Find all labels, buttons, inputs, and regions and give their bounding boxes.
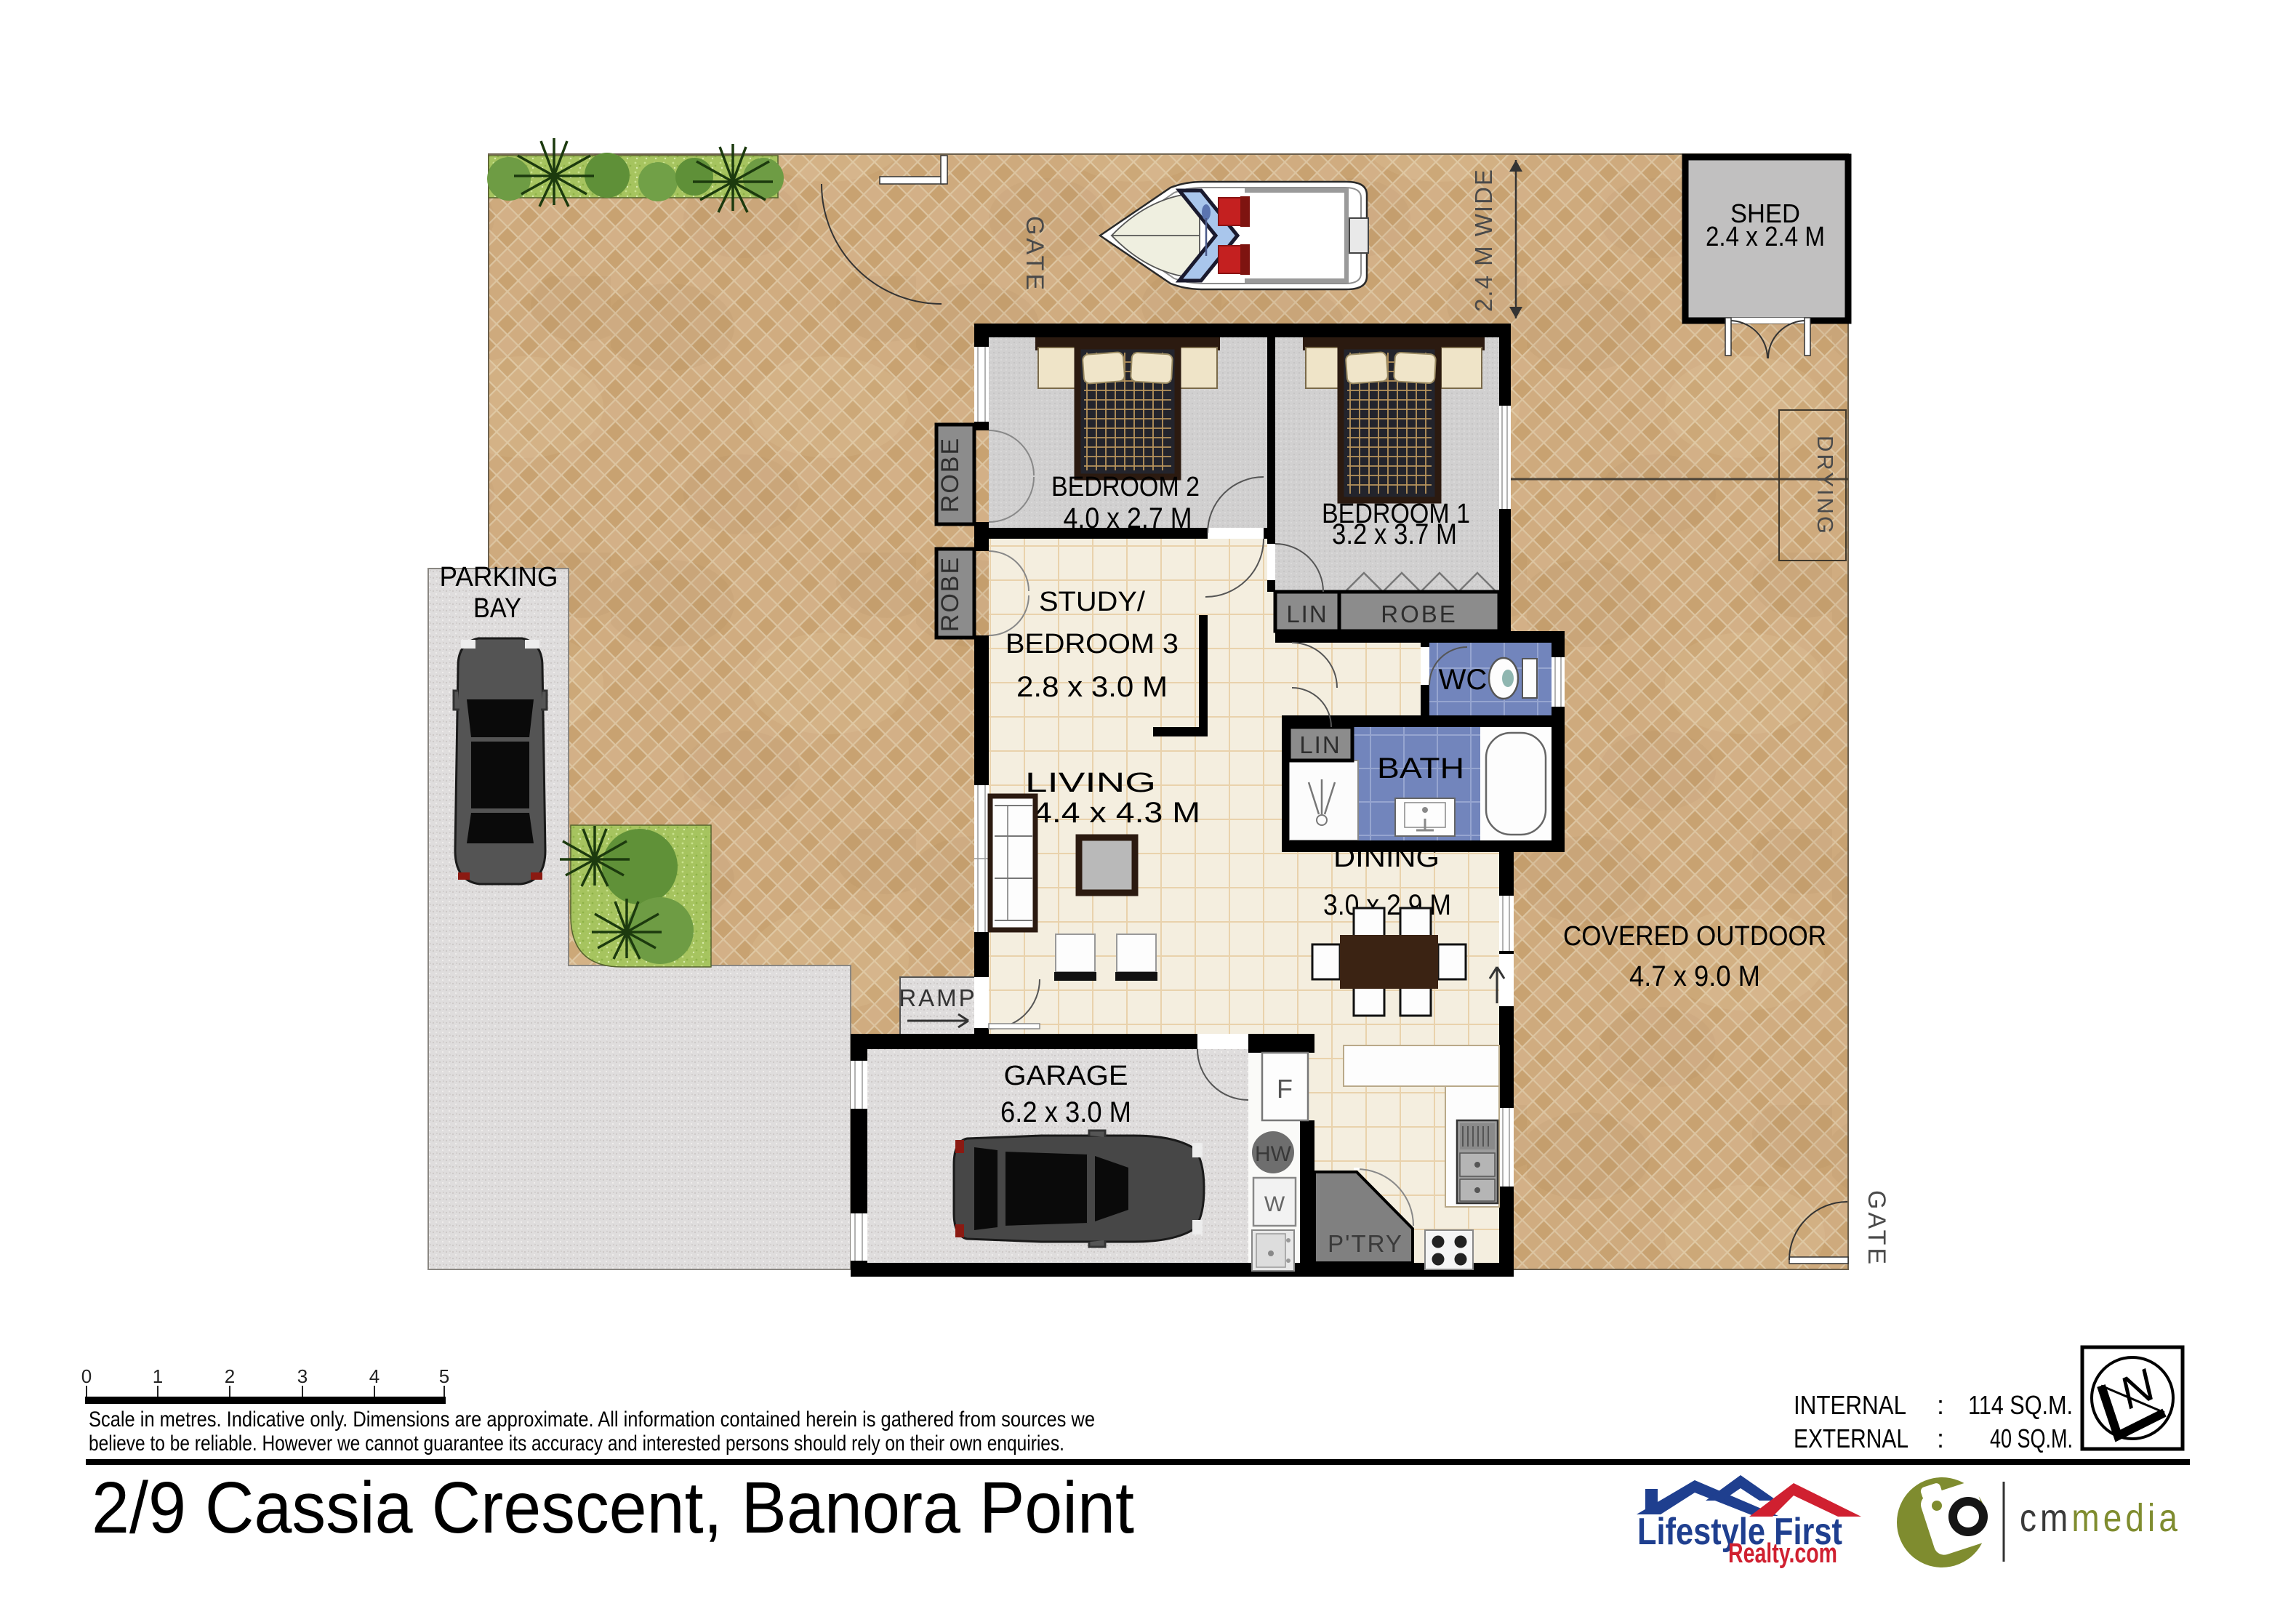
- svg-text:INTERNAL: INTERNAL: [1794, 1390, 1906, 1420]
- svg-text:GATE: GATE: [1863, 1190, 1890, 1267]
- svg-text:Scale in metres. Indicative o: Scale in metres. Indicative only. Dimens…: [89, 1408, 1095, 1432]
- svg-text:COVERED OUTDOOR: COVERED OUTDOOR: [1563, 921, 1826, 952]
- svg-text:LIVING: LIVING: [1025, 768, 1156, 798]
- svg-text:RAMP: RAMP: [899, 984, 976, 1011]
- svg-text:6.2 x 3.0 M: 6.2 x 3.0 M: [1000, 1096, 1131, 1128]
- svg-text:4.4 x 4.3 M: 4.4 x 4.3 M: [1033, 797, 1200, 829]
- svg-text:Realty.com: Realty.com: [1728, 1538, 1837, 1569]
- svg-text:4.0 x 2.7 M: 4.0 x 2.7 M: [1064, 502, 1192, 534]
- svg-text:3.2 x 3.7 M: 3.2 x 3.7 M: [1332, 518, 1457, 550]
- svg-text:cmmedia: cmmedia: [2020, 1496, 2181, 1540]
- svg-text:GARAGE: GARAGE: [1004, 1061, 1128, 1091]
- svg-text:HW: HW: [1255, 1142, 1292, 1166]
- svg-text:2: 2: [225, 1365, 235, 1387]
- svg-text:0: 0: [81, 1365, 92, 1387]
- svg-text:EXTERNAL: EXTERNAL: [1794, 1424, 1908, 1453]
- svg-text:5: 5: [439, 1365, 449, 1387]
- svg-text:BATH: BATH: [1377, 752, 1464, 784]
- svg-text:4.7 x 9.0 M: 4.7 x 9.0 M: [1629, 960, 1760, 992]
- svg-text:WC: WC: [1439, 664, 1488, 696]
- svg-text:STUDY/: STUDY/: [1039, 587, 1145, 617]
- svg-text:2/9 Cassia Crescent, Banora Po: 2/9 Cassia Crescent, Banora Point: [92, 1467, 1134, 1549]
- svg-text:GATE: GATE: [1021, 216, 1048, 293]
- svg-text:ROBE: ROBE: [1381, 601, 1458, 627]
- svg-text:BEDROOM 2: BEDROOM 2: [1051, 472, 1200, 502]
- svg-text:DINING: DINING: [1333, 843, 1440, 873]
- svg-text:F: F: [1277, 1074, 1293, 1104]
- svg-text:believe to be reliable. Howev: believe to be reliable. However we canno…: [89, 1432, 1064, 1456]
- svg-text:114 SQ.M.: 114 SQ.M.: [1968, 1390, 2073, 1420]
- svg-text:BAY: BAY: [473, 593, 521, 624]
- svg-text:LIN: LIN: [1299, 731, 1341, 758]
- svg-text:3.0 x 2.9 M: 3.0 x 2.9 M: [1323, 889, 1451, 921]
- svg-text:PARKING: PARKING: [440, 562, 558, 593]
- svg-text:3: 3: [297, 1365, 308, 1387]
- svg-text:LIN: LIN: [1286, 601, 1328, 627]
- svg-text::: :: [1937, 1390, 1944, 1420]
- svg-text:P'TRY: P'TRY: [1328, 1230, 1403, 1257]
- svg-text:2.4 x 2.4 M: 2.4 x 2.4 M: [1706, 222, 1825, 252]
- svg-text:W: W: [1264, 1192, 1285, 1216]
- svg-text:DRYING: DRYING: [1813, 435, 1838, 536]
- svg-text:BEDROOM 3: BEDROOM 3: [1005, 629, 1179, 659]
- svg-text:4: 4: [369, 1365, 380, 1387]
- svg-text:2.8 x 3.0 M: 2.8 x 3.0 M: [1016, 671, 1168, 703]
- svg-text:1: 1: [153, 1365, 163, 1387]
- svg-text:ROBE: ROBE: [936, 437, 964, 513]
- svg-text:40 SQ.M.: 40 SQ.M.: [1990, 1424, 2073, 1453]
- svg-text:ROBE: ROBE: [936, 556, 964, 632]
- svg-text:2.4 M WIDE: 2.4 M WIDE: [1470, 168, 1497, 312]
- svg-text::: :: [1937, 1424, 1944, 1453]
